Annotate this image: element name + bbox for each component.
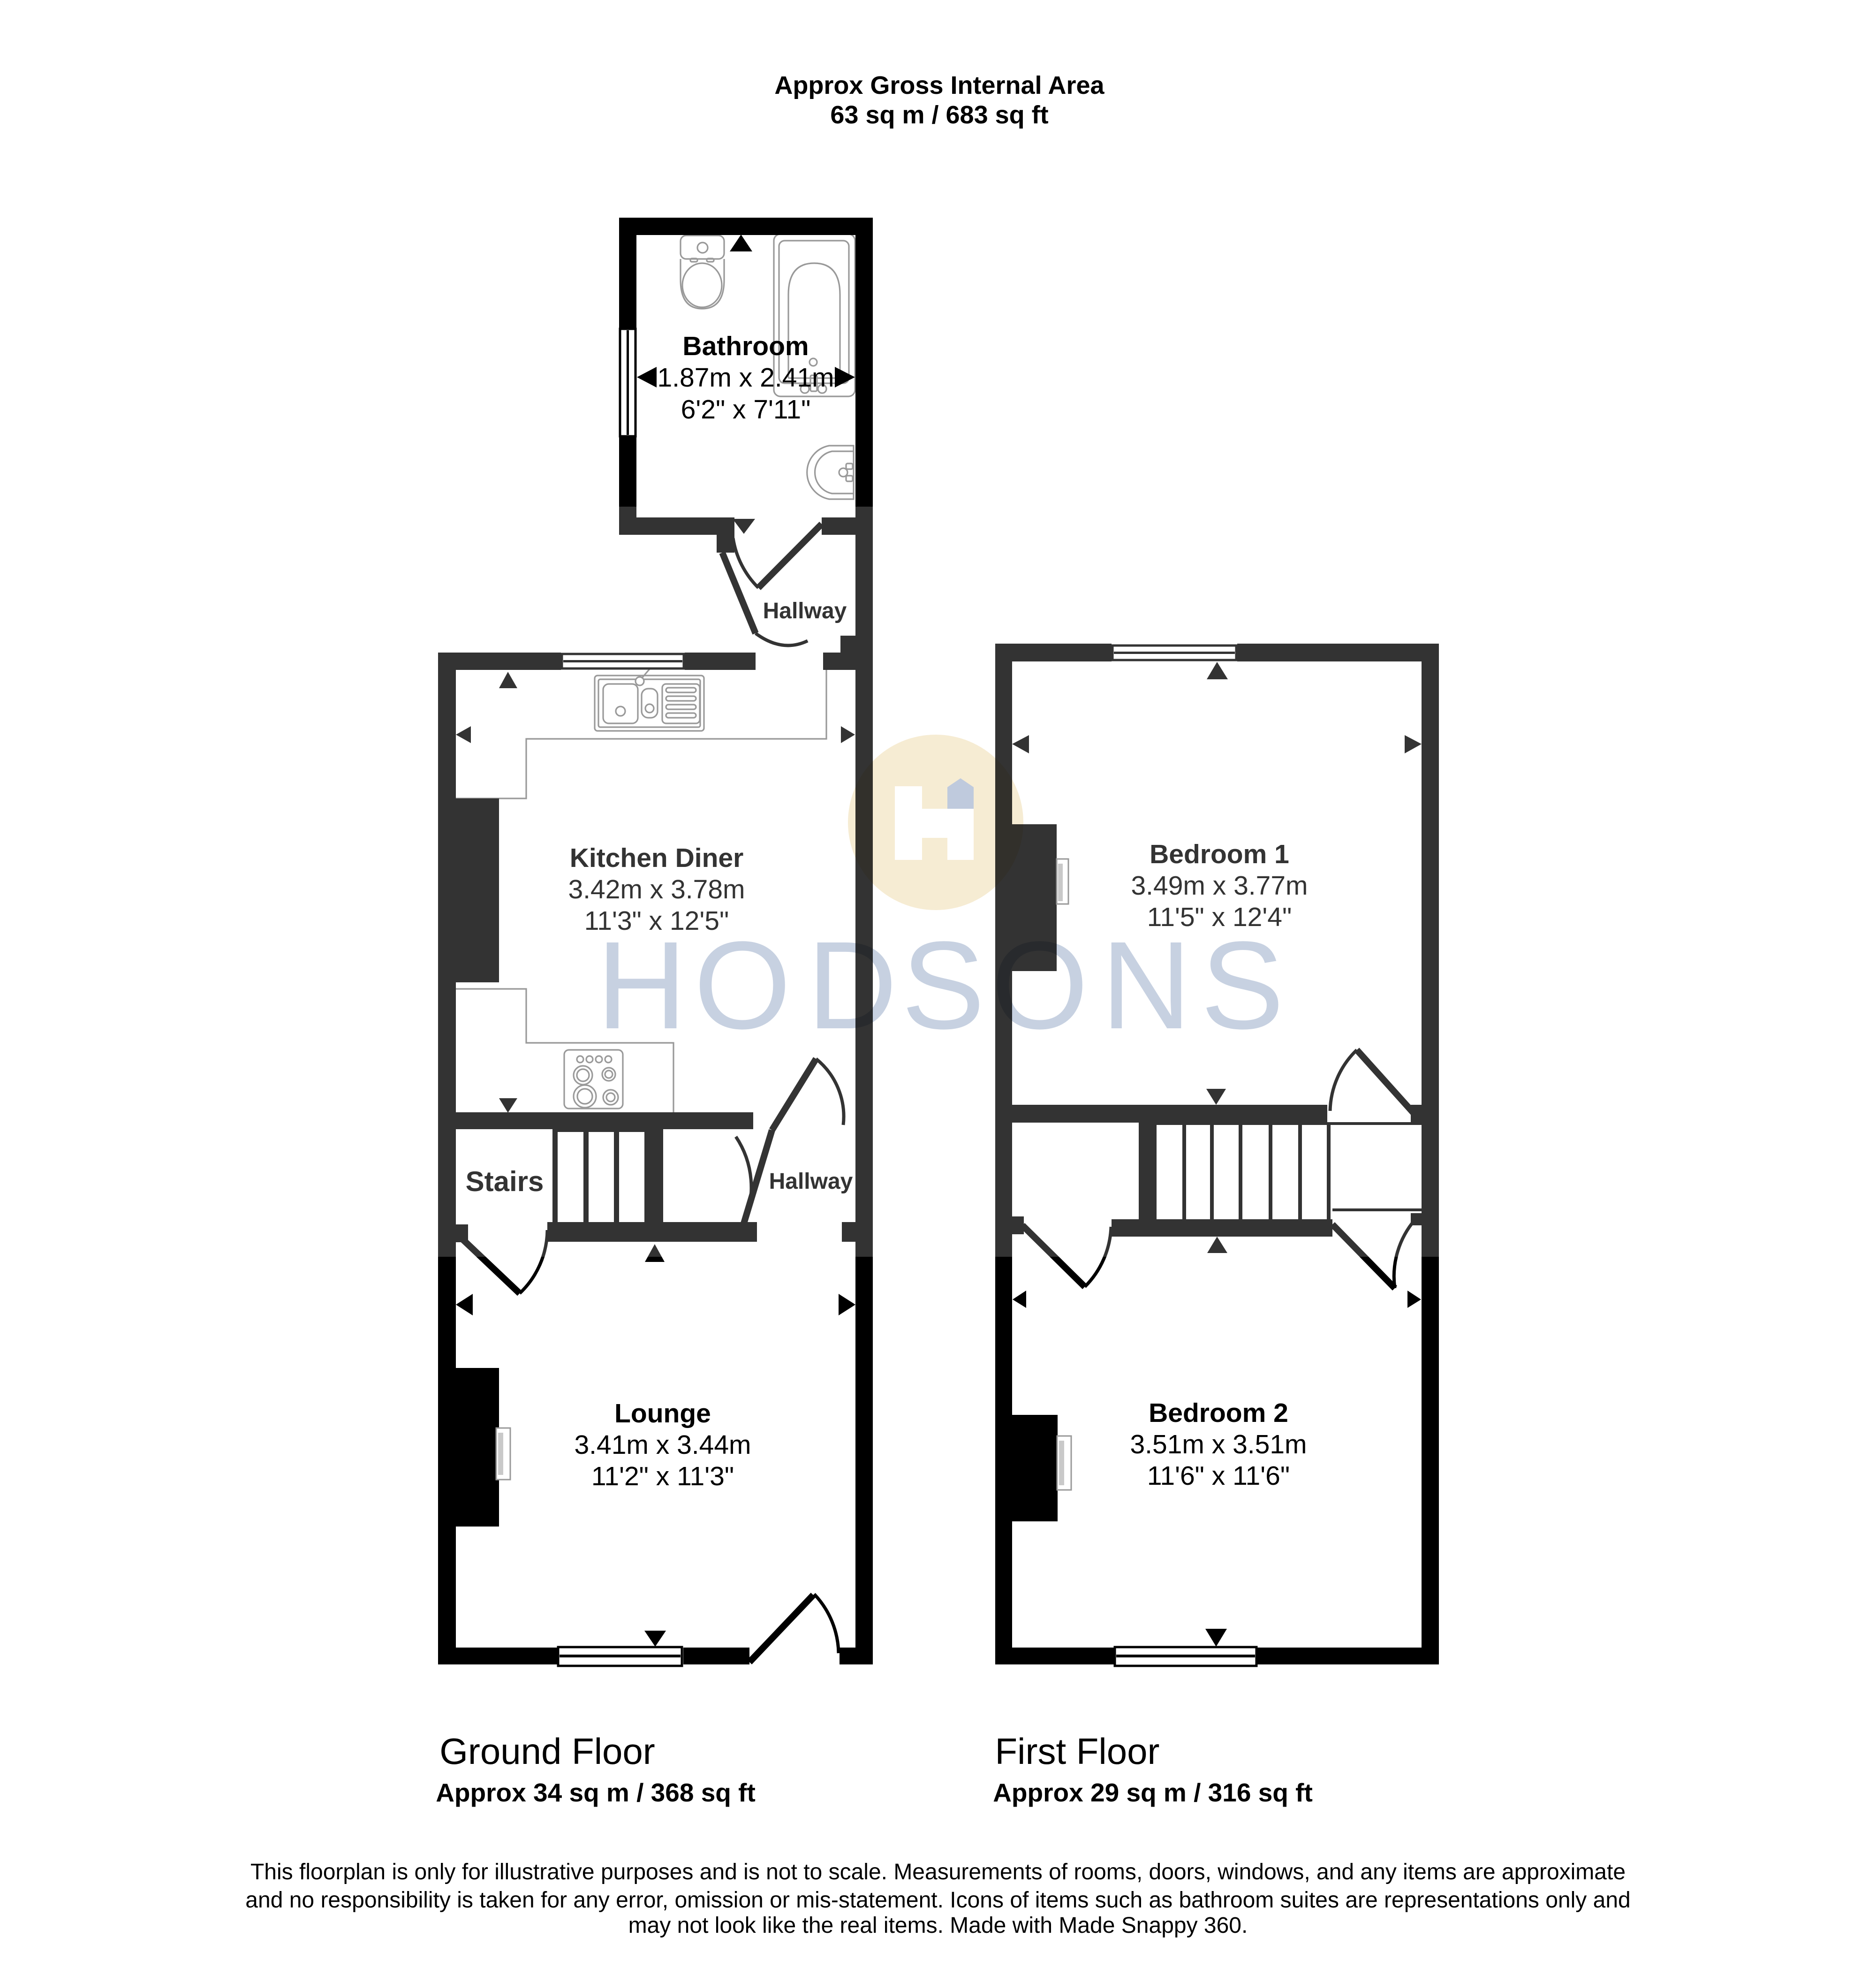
svg-text:D: D (807, 916, 897, 1055)
svg-text:Lounge: Lounge (614, 1398, 711, 1428)
svg-text:First Floor: First Floor (995, 1731, 1160, 1772)
svg-text:N: N (1101, 916, 1191, 1055)
svg-text:Bathroom: Bathroom (682, 331, 809, 361)
svg-text:3.42m x 3.78m: 3.42m x 3.78m (568, 874, 745, 904)
svg-text:H: H (597, 916, 687, 1055)
svg-text:S: S (901, 916, 984, 1055)
svg-text:and no responsibility is taken: and no responsibility is taken for any e… (245, 1888, 1630, 1913)
svg-text:S: S (1201, 916, 1284, 1055)
svg-text:This floorplan is only for ill: This floorplan is only for illustrative … (250, 1860, 1626, 1884)
svg-text:11'6" x 11'6": 11'6" x 11'6" (1147, 1461, 1290, 1491)
svg-text:3.51m x 3.51m: 3.51m x 3.51m (1130, 1429, 1307, 1459)
svg-text:Approx 29 sq m / 316 sq ft: Approx 29 sq m / 316 sq ft (993, 1778, 1313, 1807)
svg-text:O: O (694, 916, 791, 1055)
svg-text:Hallway: Hallway (769, 1169, 853, 1194)
svg-text:may not look like the real ite: may not look like the real items. Made w… (628, 1913, 1248, 1938)
svg-text:3.41m x 3.44m: 3.41m x 3.44m (574, 1430, 751, 1460)
svg-text:3.49m x 3.77m: 3.49m x 3.77m (1131, 871, 1308, 901)
svg-text:63 sq m / 683 sq ft: 63 sq m / 683 sq ft (830, 101, 1048, 129)
svg-text:Stairs: Stairs (466, 1166, 544, 1197)
svg-text:1.87m x 2.41m: 1.87m x 2.41m (657, 363, 834, 393)
svg-text:6'2" x 7'11": 6'2" x 7'11" (681, 395, 811, 425)
svg-text:Hallway: Hallway (763, 599, 847, 623)
svg-text:Bedroom 1: Bedroom 1 (1150, 839, 1289, 869)
svg-text:11'3" x 12'5": 11'3" x 12'5" (584, 906, 729, 936)
svg-text:Kitchen Diner: Kitchen Diner (570, 843, 744, 873)
svg-text:Approx 34 sq m / 368 sq ft: Approx 34 sq m / 368 sq ft (436, 1778, 756, 1807)
svg-text:11'2" x 11'3": 11'2" x 11'3" (591, 1461, 734, 1491)
svg-text:Approx Gross Internal Area: Approx Gross Internal Area (774, 71, 1104, 99)
svg-text:Bedroom 2: Bedroom 2 (1149, 1398, 1288, 1428)
svg-text:11'5" x 12'4": 11'5" x 12'4" (1147, 902, 1292, 932)
svg-text:O: O (991, 916, 1089, 1055)
svg-text:Ground Floor: Ground Floor (439, 1731, 655, 1772)
